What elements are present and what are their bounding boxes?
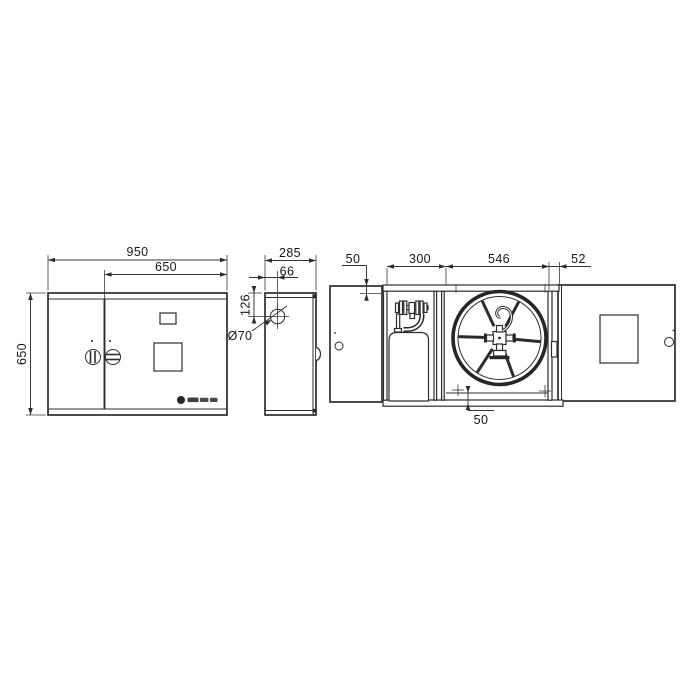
dimension-arrowhead (252, 317, 257, 324)
dimension-arrowhead (466, 386, 471, 393)
right-door-dot (673, 330, 675, 332)
technical-drawing-page: 950 650 650 285 66 126 Ø70 50 300 546 52… (0, 0, 700, 700)
dimension-arrowhead (220, 258, 227, 263)
open-view (330, 285, 675, 406)
dimension-arrowhead (542, 264, 549, 269)
reel-axle-dot (498, 337, 501, 340)
dimension-arrowhead (48, 258, 55, 263)
dim-top-offset-label: 50 (346, 252, 361, 266)
hinge-mark-top (313, 294, 317, 298)
dim-bottom-offset-label: 50 (474, 413, 489, 427)
reel-bracket (494, 351, 507, 357)
dimension-arrowhead (252, 286, 257, 293)
dim-reel-bay-label: 546 (488, 252, 510, 266)
wall-latch (552, 342, 558, 358)
reel-spoke (482, 301, 494, 326)
valve-assembly (395, 301, 429, 332)
right-door-window (600, 315, 638, 363)
hub-stub-top (497, 326, 503, 333)
dimension-arrowhead (265, 258, 272, 263)
door-handle-bump (316, 348, 321, 361)
reel-bracket-base (490, 356, 510, 359)
dim-right-offset-label: 52 (571, 252, 586, 266)
cabinet-orthographic-drawing: 950 650 650 285 66 126 Ø70 50 300 546 52… (0, 0, 700, 700)
side-view (265, 293, 321, 415)
dimension-arrowhead (560, 264, 567, 269)
hub-cap-right (513, 334, 516, 343)
dim-front-height-label: 650 (15, 343, 29, 365)
dim-front-door-width-label: 650 (155, 260, 177, 274)
dimension-arrowhead (258, 275, 265, 280)
dimension-arrowhead (220, 272, 227, 277)
reel-spoke (477, 349, 492, 372)
dimension-arrowhead (364, 279, 369, 286)
lock-dot (91, 340, 93, 342)
hub-stub-bottom (497, 344, 503, 351)
divider-wall-b (442, 291, 445, 400)
dimension-arrowhead (439, 264, 446, 269)
dimension-arrowhead (105, 272, 112, 277)
alarm-window (160, 313, 176, 324)
left-wall (384, 291, 388, 400)
dim-side-depth-label: 285 (279, 246, 301, 260)
dim-left-bay-label: 300 (409, 252, 431, 266)
hub-cap-left (484, 334, 487, 343)
dim-hole-diameter-label: Ø70 (228, 329, 253, 343)
dimension-arrowhead (28, 293, 33, 300)
front-view (48, 293, 227, 415)
hose-reel (453, 292, 546, 385)
divider-wall-a (434, 291, 437, 400)
dimension-arrowhead (309, 258, 316, 263)
dim-hole-offset-x-label: 66 (280, 265, 295, 279)
cabinet-top-panel (383, 285, 559, 291)
dimension-arrowhead (446, 264, 453, 269)
hub-stub-left (487, 335, 494, 341)
extinguisher-tank (389, 333, 429, 402)
dim-front-width-label: 950 (126, 245, 148, 259)
left-door-dot (334, 332, 336, 334)
dim-hole-offset-y-label: 126 (239, 294, 253, 316)
lock-dot (109, 340, 111, 342)
hub-stub-right (506, 335, 513, 341)
dimension-arrowhead (387, 264, 394, 269)
dimension-arrowhead (28, 408, 33, 415)
cabinet-front-outline (48, 293, 227, 415)
document-window (154, 343, 182, 371)
hinge-mark-bottom (313, 409, 317, 413)
left-door-open (330, 286, 382, 402)
